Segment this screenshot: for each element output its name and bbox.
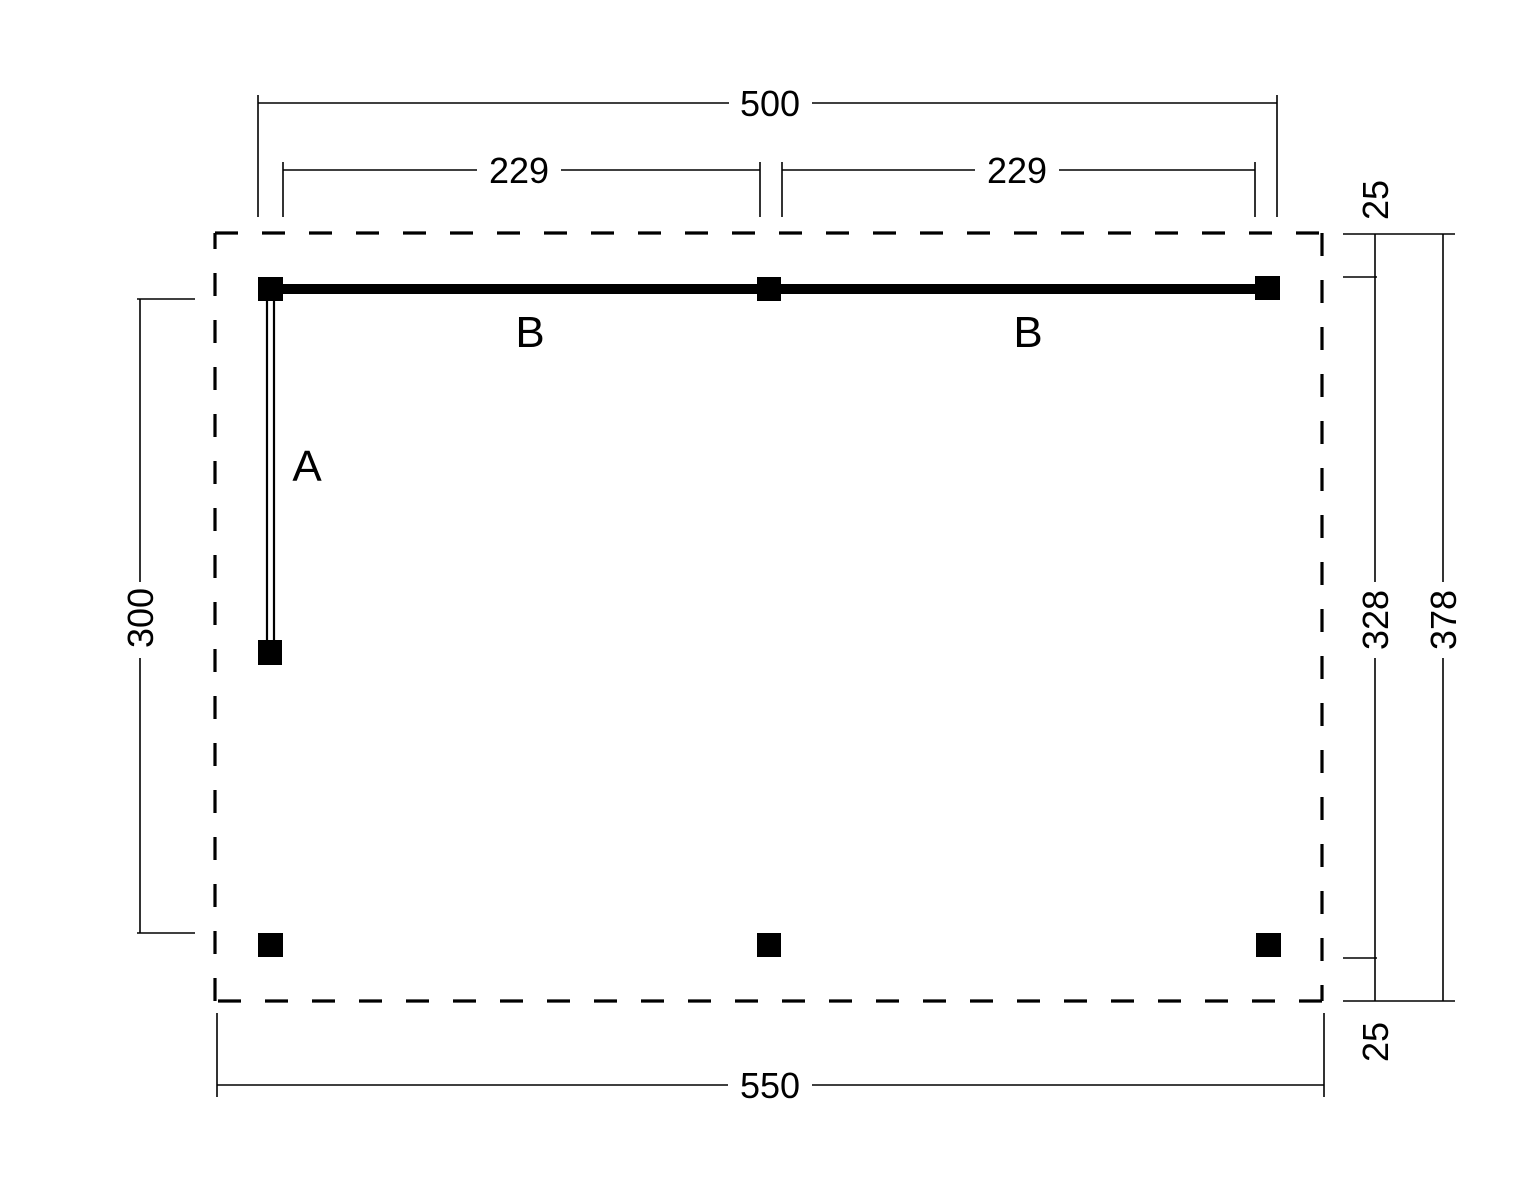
roof-outline — [215, 233, 1322, 1001]
beam-b-right-label: B — [1013, 308, 1042, 357]
dim-500-label: 500 — [740, 83, 800, 124]
dim-229-right-label: 229 — [987, 150, 1047, 191]
dim-25-bottom-label: 25 — [1355, 1022, 1396, 1062]
post-bottom-left — [258, 933, 283, 957]
dim-550-label: 550 — [740, 1065, 800, 1106]
dimension-229-left: 229 — [283, 150, 760, 217]
post-bottom-right — [1256, 933, 1281, 957]
dim-300-label: 300 — [120, 588, 161, 648]
posts — [258, 276, 1281, 957]
dimension-500: 500 — [258, 83, 1277, 217]
dim-378-label: 378 — [1423, 590, 1464, 650]
dimensions-right: 25 328 378 25 — [1343, 180, 1464, 1062]
post-top-right — [1255, 276, 1280, 300]
dim-328-label: 328 — [1355, 590, 1396, 650]
dimension-550: 550 — [217, 1013, 1324, 1106]
wall-a — [267, 301, 274, 641]
post-top-middle — [757, 277, 781, 301]
post-bottom-middle — [757, 933, 781, 957]
dim-229-left-label: 229 — [489, 150, 549, 191]
floor-plan-svg: 500 229 229 25 3 — [0, 0, 1531, 1191]
wall-a-label: A — [292, 442, 322, 491]
beam-b-left-label: B — [515, 308, 544, 357]
floor-plan-drawing: 500 229 229 25 3 — [0, 0, 1531, 1191]
post-top-left — [258, 277, 283, 301]
dimension-229-right: 229 — [782, 150, 1255, 217]
part-labels: B B A — [292, 308, 1042, 491]
dim-25-top-label: 25 — [1355, 180, 1396, 220]
post-wall-a-end — [258, 640, 282, 665]
dimension-300: 300 — [120, 299, 195, 933]
